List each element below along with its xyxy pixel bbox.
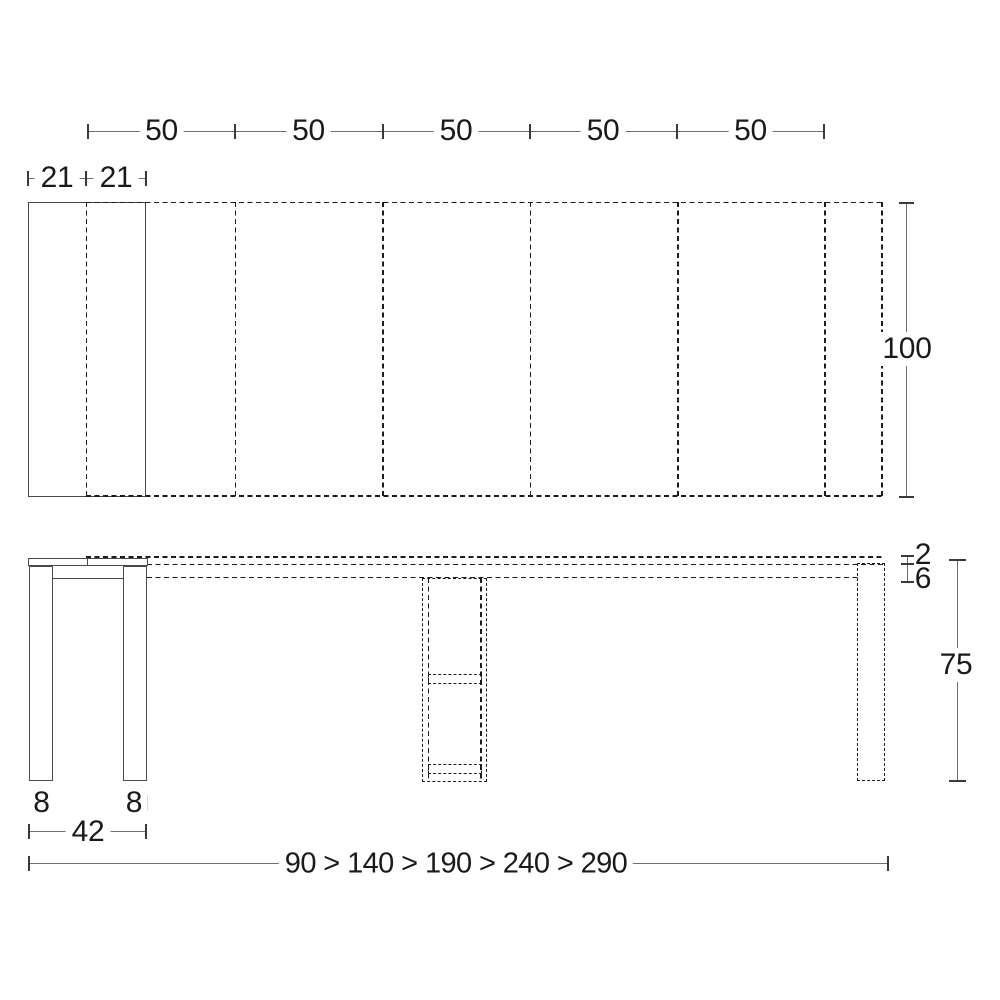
dim-label-lengths: 90 > 140 > 190 > 240 > 290 (279, 847, 633, 880)
dim-label-extension-4: 50 (581, 114, 626, 148)
dim-label-leg-left: 8 (27, 786, 55, 820)
technical-drawing-canvas: 50 50 50 50 50 21 21 100 2 6 (0, 0, 1000, 1000)
dim-tick (901, 581, 914, 583)
plan-section-divider-dashed-4 (677, 202, 679, 496)
dim-tick (145, 171, 147, 186)
dim-tick (145, 824, 147, 839)
dim-label-leg-right: 8 (120, 786, 148, 820)
plan-leaf-divider-dashed (86, 202, 88, 496)
dim-tick (901, 563, 914, 565)
dim-tick (529, 124, 531, 139)
dim-label-height: 75 (934, 648, 979, 682)
dim-tick (949, 780, 966, 782)
dim-tick (676, 124, 678, 139)
side-frame-dashed (147, 577, 858, 579)
dim-label-frame-height: 6 (915, 564, 931, 594)
dim-label-extension-3: 50 (434, 114, 479, 148)
dim-label-extension-2: 50 (286, 114, 331, 148)
dim-tick (234, 124, 236, 139)
dim-label-leaf-1: 21 (35, 161, 80, 195)
side-end-leg-dashed (857, 563, 885, 782)
side-top-extended-dashed-upper (86, 556, 886, 558)
plan-extended-outline-top-dashed (86, 202, 883, 204)
dim-tick (27, 171, 29, 186)
plan-section-divider-dashed-3 (530, 202, 532, 496)
dim-tick (949, 559, 966, 561)
dim-tick (823, 124, 825, 139)
dim-label-depth: 100 (876, 332, 937, 366)
side-top-extended-dashed-lower (147, 564, 885, 566)
plan-section-divider-dashed-5 (824, 202, 826, 496)
dim-label-base: 42 (66, 815, 111, 849)
side-center-rail-lower-dashed (428, 764, 482, 775)
dim-tick (901, 555, 914, 557)
plan-section-divider-dashed-1 (235, 202, 237, 496)
dim-tick (85, 171, 87, 186)
side-leg-right (123, 566, 147, 782)
plan-section-divider-dashed-2 (382, 202, 384, 496)
dim-tick (28, 856, 30, 871)
dim-label-extension-1: 50 (139, 114, 184, 148)
side-tabletop-divider (87, 558, 89, 565)
dim-tick (28, 824, 30, 839)
side-leg-left (29, 566, 53, 782)
dim-label-extension-5: 50 (728, 114, 773, 148)
dim-tick (87, 124, 89, 139)
dim-label-leaf-2: 21 (94, 161, 139, 195)
plan-extended-outline-bottom-dashed (86, 495, 883, 497)
dim-tick (887, 856, 889, 871)
side-apron (52, 578, 124, 580)
side-center-rail-upper-dashed (428, 674, 482, 685)
dim-tick (899, 496, 914, 498)
dim-tick (899, 202, 914, 204)
dim-tick (382, 124, 384, 139)
dim-line-top-thickness (907, 556, 908, 582)
